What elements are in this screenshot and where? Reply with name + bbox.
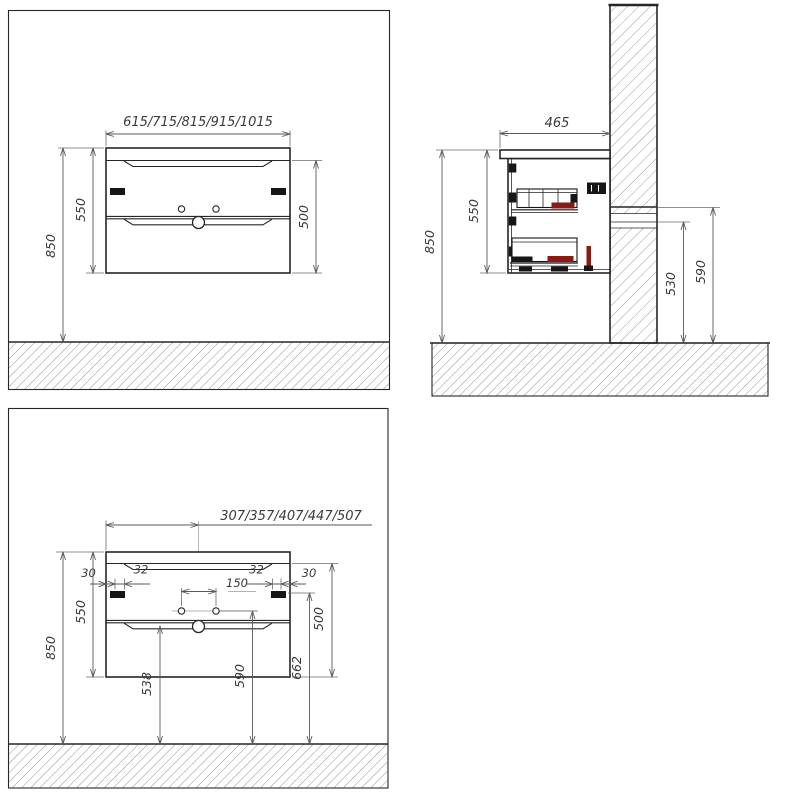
dim-faucet-hole-height: 590 <box>232 664 247 688</box>
detail-view: 307/357/407/447/507 30 32 30 32 <box>9 409 389 789</box>
right-damper <box>271 591 286 598</box>
front-view-floor <box>9 342 389 389</box>
countertop <box>500 150 610 159</box>
dim-cabinet-height: 550 <box>466 199 481 223</box>
dim-supply-height: 590 <box>693 260 708 284</box>
vanity-drawing-svg: 615/715/815/915/1015 550 850 500 <box>0 0 800 800</box>
dim-cabinet-height: 550 <box>73 198 88 222</box>
slide-bracket <box>509 217 517 226</box>
front-dim-width: 615/715/815/915/1015 <box>106 115 290 146</box>
dim-groove-inset-right: 32 <box>249 563 264 577</box>
detail-dim-850: 850 <box>43 552 104 744</box>
dim-cabinet-height: 550 <box>73 600 88 624</box>
slide-bracket <box>509 193 517 203</box>
dim-mounting-height: 850 <box>43 234 58 258</box>
faucet-hole-right <box>213 608 219 614</box>
dim-depth: 465 <box>545 116 570 131</box>
soft-close-red <box>552 203 575 209</box>
dim-side-inset-left: 30 <box>81 566 96 580</box>
left-damper <box>110 591 125 598</box>
front-cabinet <box>106 148 290 273</box>
side-view: 465 850 550 530 590 <box>422 5 770 396</box>
soft-close-red <box>548 256 574 262</box>
dim-side-inset-right: 30 <box>302 566 317 580</box>
dim-lower-groove-height: 538 <box>139 672 154 696</box>
drain-hole <box>193 621 205 633</box>
drain-connector <box>587 183 606 195</box>
front-dim-500: 500 <box>292 161 322 274</box>
dim-drain-height: 530 <box>663 272 678 296</box>
slide-bracket <box>509 164 517 173</box>
side-cabinet <box>500 150 610 273</box>
wall-section <box>609 5 659 343</box>
supply-pipe-red <box>587 246 592 267</box>
side-view-floor <box>432 343 768 396</box>
side-dim-530: 530 <box>658 222 690 343</box>
front-view: 615/715/815/915/1015 550 850 500 <box>9 11 390 390</box>
dim-mounting-height: 850 <box>422 230 437 254</box>
drain-hole <box>193 217 205 229</box>
detail-dim-center-offset: 307/357/407/447/507 <box>106 509 372 550</box>
dim-handle-axis-height: 662 <box>289 656 304 680</box>
right-damper <box>271 188 286 195</box>
dim-drawer-block-height: 500 <box>311 607 326 631</box>
dim-drawer-block-height: 500 <box>296 205 311 229</box>
dim-mounting-height: 850 <box>43 636 58 660</box>
left-damper <box>110 188 125 195</box>
faucet-hole-left <box>178 608 184 614</box>
side-dim-465: 465 <box>500 116 610 148</box>
detail-view-floor <box>9 744 387 788</box>
front-dim-550: 550 <box>58 148 104 273</box>
vanity-technical-drawing-page: 615/715/815/915/1015 550 850 500 <box>0 0 800 800</box>
dim-center-offset-options: 307/357/407/447/507 <box>220 509 362 524</box>
side-dim-550: 550 <box>466 150 506 273</box>
dim-faucet-spacing: 150 <box>226 576 248 590</box>
dim-width-options: 615/715/815/915/1015 <box>123 115 273 130</box>
front-dim-850: 850 <box>43 148 63 342</box>
dim-groove-inset-left: 32 <box>134 563 149 577</box>
